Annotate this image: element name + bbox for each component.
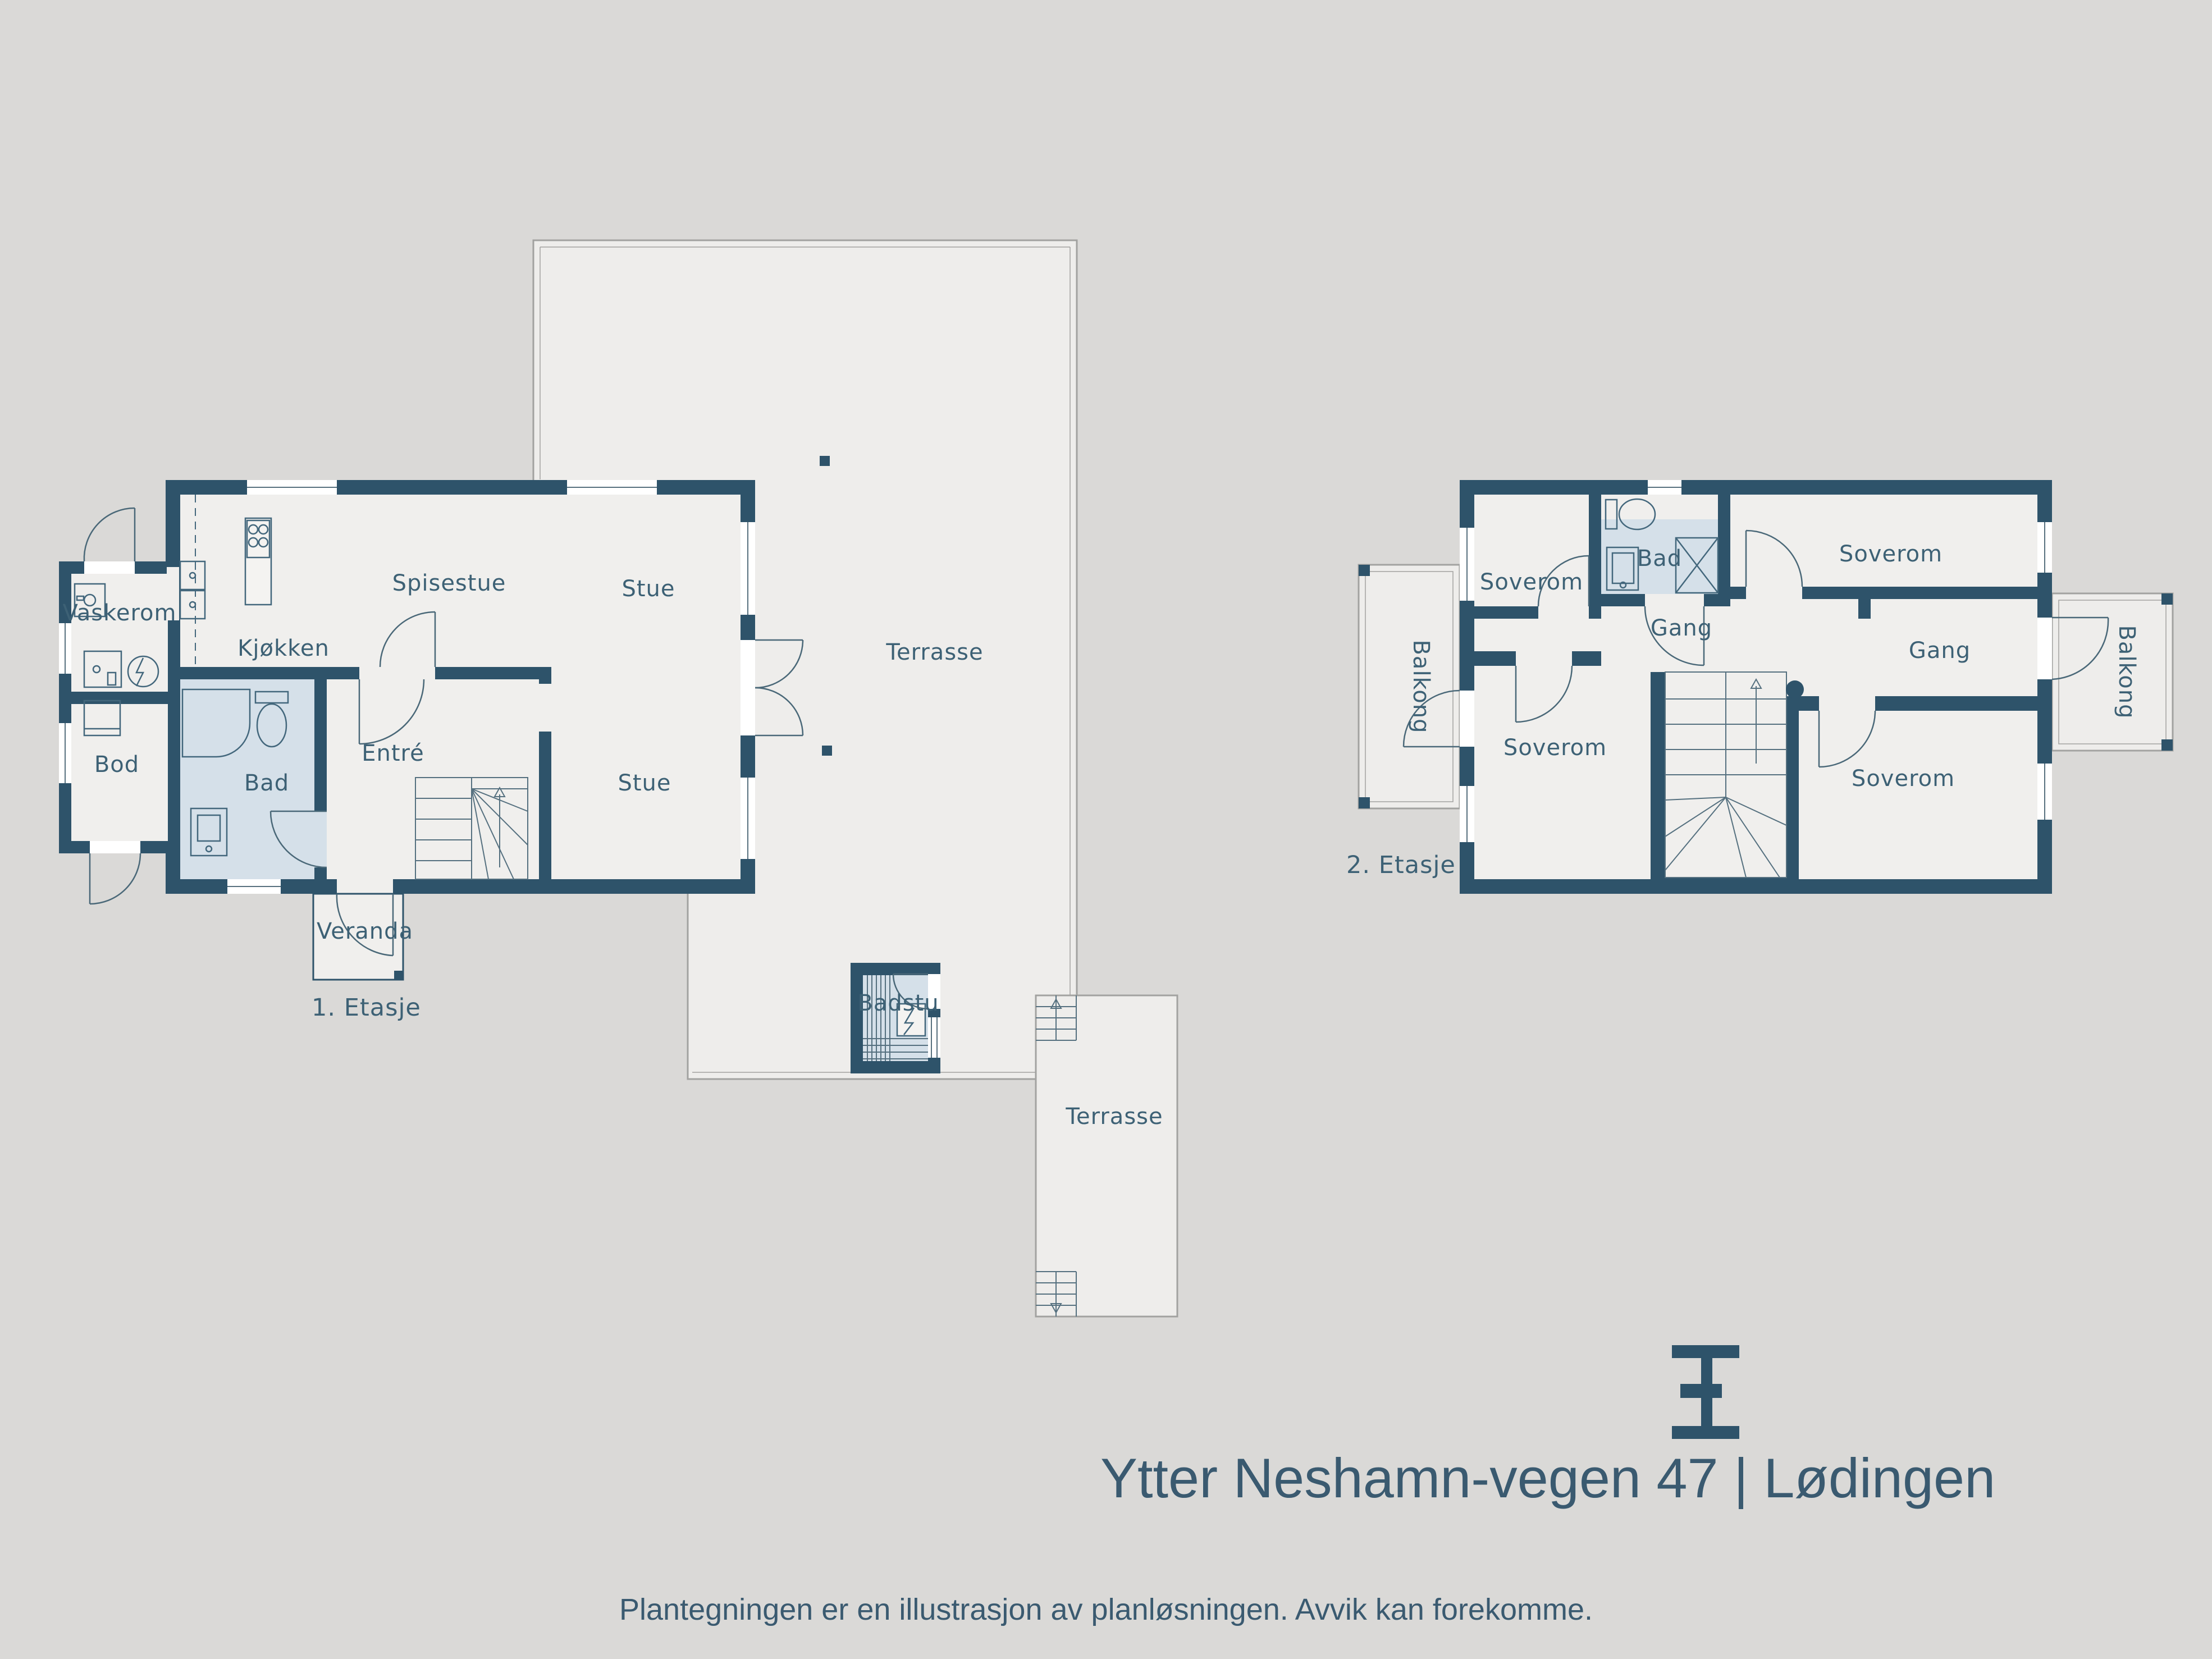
terrace-lower bbox=[1036, 995, 1177, 1317]
realtor-logo-icon bbox=[1672, 1345, 1739, 1439]
room-label-soverom-bl: Soverom bbox=[1503, 735, 1607, 761]
floor2-tag: 2. Etasje bbox=[1346, 851, 1456, 879]
room-label-gang-center: Gang bbox=[1651, 615, 1712, 641]
terrace-post bbox=[820, 456, 830, 466]
floor1-tag: 1. Etasje bbox=[312, 994, 421, 1022]
room-label-soverom-tl: Soverom bbox=[1480, 569, 1583, 595]
room-label-spisestue: Spisestue bbox=[392, 570, 506, 596]
bedroom-bottom-right bbox=[1799, 711, 2037, 879]
room-label-terrasse-main: Terrasse bbox=[885, 639, 983, 665]
logo-bar-middle bbox=[1680, 1384, 1722, 1398]
room-label-entre: Entré bbox=[362, 741, 424, 766]
sauna-window bbox=[928, 1017, 940, 1058]
property-title: Ytter Neshamn-vegen 47 | Lødingen bbox=[1100, 1446, 1995, 1510]
room-label-stue-lower: Stue bbox=[618, 770, 671, 796]
annex-rear-door-arc bbox=[90, 853, 140, 904]
floor1-plan: Vaskerom Bod Kjøkken Spisestue Stue Stue… bbox=[45, 225, 1252, 1359]
annex-entry-door-arc bbox=[84, 508, 135, 561]
room-label-soverom-br: Soverom bbox=[1852, 766, 1955, 792]
disclaimer-text: Plantegningen er en illustrasjon av plan… bbox=[0, 1592, 2212, 1627]
logo-bar-bottom bbox=[1672, 1426, 1739, 1439]
room-label-vaskerom: Vaskerom bbox=[63, 600, 177, 626]
room-label-kjokken: Kjøkken bbox=[237, 636, 330, 661]
bedroom-top-right bbox=[1730, 495, 2037, 587]
room-label-terrasse-lower: Terrasse bbox=[1065, 1104, 1163, 1130]
room-label-bad: Bad bbox=[244, 770, 289, 796]
terrace-post bbox=[822, 746, 832, 756]
room-label-gang-right: Gang bbox=[1909, 638, 1971, 664]
floor1-entry bbox=[327, 679, 539, 879]
floor-plan-sheet: Vaskerom Bod Kjøkken Spisestue Stue Stue… bbox=[0, 0, 2212, 1659]
floor2-plan: Soverom Bad Soverom Gang Gang Soverom So… bbox=[1336, 460, 2195, 954]
room-label-stue-upper: Stue bbox=[621, 576, 675, 602]
room-label-badstu: Badstu bbox=[857, 990, 939, 1016]
room-label-veranda: Veranda bbox=[317, 918, 413, 944]
room-label-bad2: Bad bbox=[1637, 546, 1682, 572]
room-label-soverom-tr: Soverom bbox=[1839, 541, 1943, 567]
room-label-balkong-right: Balkong bbox=[2114, 625, 2140, 719]
badstu bbox=[851, 963, 940, 1073]
room-label-bod: Bod bbox=[94, 752, 139, 778]
stair-newel-post bbox=[1786, 680, 1804, 698]
room-label-balkong-left: Balkong bbox=[1408, 639, 1434, 733]
annex bbox=[59, 508, 180, 904]
